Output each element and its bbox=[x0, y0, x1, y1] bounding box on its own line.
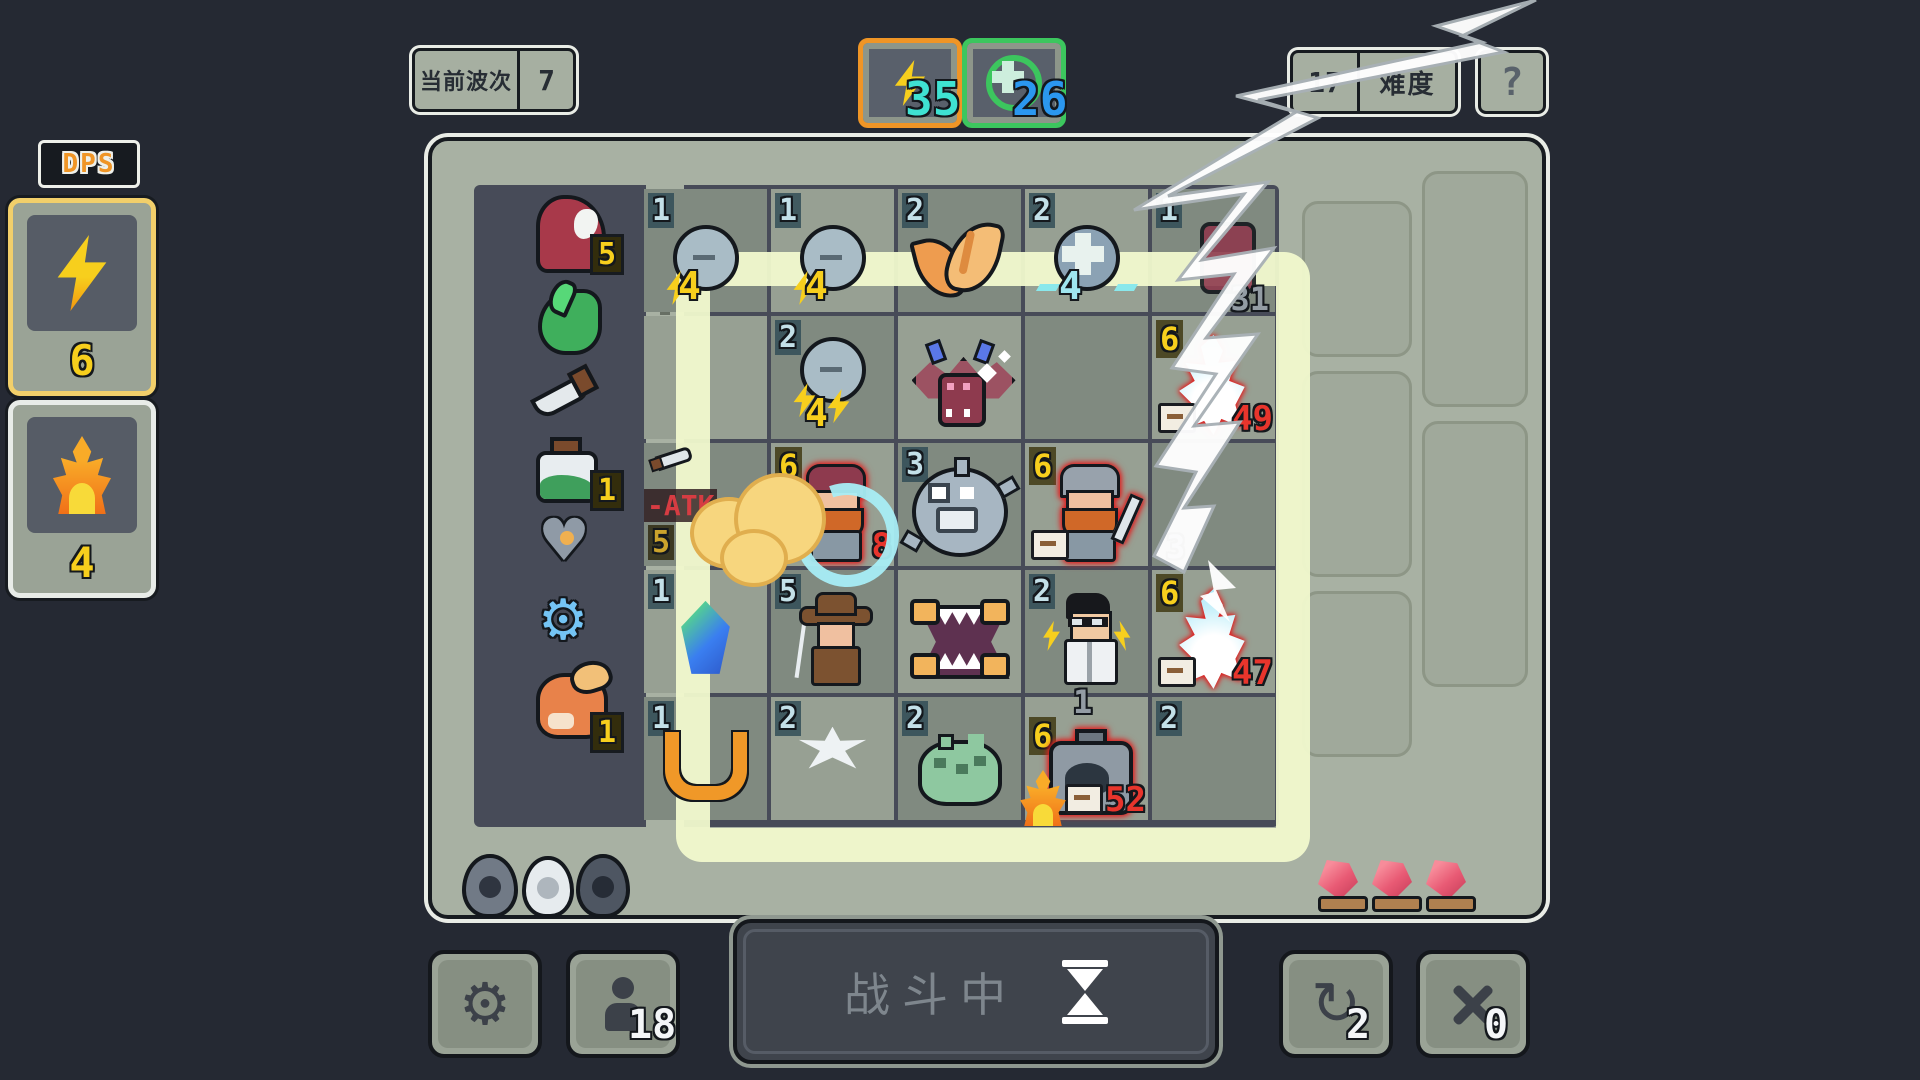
mimic bbox=[910, 599, 1010, 679]
refresh-button[interactable]: ↻ bbox=[1279, 950, 1393, 1058]
red-gem[interactable] bbox=[1426, 860, 1470, 912]
lightning-dps-count: 6 bbox=[13, 336, 151, 385]
refresh-count: 2 bbox=[1346, 1002, 1370, 1048]
pufferfish bbox=[912, 467, 1008, 557]
heal-value: 4 bbox=[1059, 264, 1082, 308]
block-value: 31 bbox=[1230, 280, 1269, 318]
wave-value: 7 bbox=[520, 51, 573, 109]
unit-count: 2 bbox=[1156, 701, 1182, 736]
swap-count: 0 bbox=[1484, 1002, 1508, 1048]
item-armored-heart[interactable]: ♥ bbox=[538, 513, 614, 589]
item-green-slime[interactable] bbox=[538, 289, 614, 365]
egg-charm-black[interactable] bbox=[576, 854, 630, 918]
settings-button[interactable]: ⚙ bbox=[428, 950, 542, 1058]
damage-value: 4 bbox=[678, 264, 701, 308]
item-dagger[interactable] bbox=[532, 363, 608, 439]
blue-gear-icon: ⚙ bbox=[538, 593, 614, 649]
wave-label: 当前波次 bbox=[415, 51, 517, 109]
bat-demon bbox=[912, 343, 1008, 427]
fire-icon bbox=[49, 436, 115, 514]
item-green-potion[interactable]: 1 bbox=[536, 437, 612, 513]
difficulty-value: 17 bbox=[1293, 53, 1357, 111]
game-screen: 当前波次 7 35 26 17 难度 ? DPS 6 4 bbox=[0, 0, 1920, 1080]
damage-number: 52 bbox=[1105, 780, 1146, 820]
hourglass-icon bbox=[1062, 960, 1108, 1024]
battle-grid: 1 4 1 4 2 2 4 1 31 bbox=[644, 189, 1275, 820]
item-count: 1 bbox=[590, 712, 624, 753]
minus-marker bbox=[1065, 784, 1103, 814]
item-count: 1 bbox=[590, 470, 624, 511]
armored-heart-icon: ♥ bbox=[538, 513, 614, 567]
dps-lightning-card[interactable]: 6 bbox=[8, 198, 156, 396]
explorer bbox=[791, 592, 875, 686]
scientist bbox=[1042, 593, 1132, 685]
wave-counter: 当前波次 7 bbox=[412, 48, 576, 112]
block-value: 3 bbox=[1166, 528, 1185, 566]
unit-count: 1 bbox=[648, 701, 674, 736]
unit-count: 2 bbox=[1029, 193, 1055, 228]
game-board: 5 1 ♥ ⚙ 1 bbox=[428, 137, 1546, 919]
help-button[interactable]: ? bbox=[1478, 50, 1546, 114]
red-gem[interactable] bbox=[1372, 860, 1416, 912]
dps-badge: DPS bbox=[38, 140, 140, 188]
heal-count: 26 bbox=[1012, 72, 1067, 126]
icon-well bbox=[27, 417, 137, 533]
item-fox-pet[interactable]: 1 bbox=[536, 673, 612, 749]
question-icon: ? bbox=[1501, 60, 1524, 104]
egg-charm-dark[interactable] bbox=[462, 854, 518, 918]
stone-tile bbox=[1302, 371, 1412, 577]
item-red-hood-minion[interactable]: 5 bbox=[536, 195, 612, 271]
stone-tile bbox=[1422, 171, 1528, 407]
fire-dps-count: 4 bbox=[13, 538, 151, 587]
red-gem[interactable] bbox=[1318, 860, 1362, 912]
fox-creature bbox=[914, 218, 1006, 298]
stone-tile bbox=[1422, 421, 1528, 687]
damage-value: 4 bbox=[805, 264, 828, 308]
damage-number: 47 bbox=[1232, 653, 1273, 693]
unit-count: 2 bbox=[775, 701, 801, 736]
stone-tile bbox=[1302, 591, 1412, 757]
unit-count: 3 bbox=[902, 447, 928, 482]
damage-value: 4 bbox=[805, 391, 828, 435]
item-blue-gear[interactable]: ⚙ bbox=[538, 593, 614, 669]
hero-count: 18 bbox=[628, 1002, 676, 1048]
egg-charm-white[interactable] bbox=[522, 856, 574, 918]
unit-count: 1 bbox=[775, 193, 801, 228]
item-count: 5 bbox=[590, 234, 624, 275]
minus-marker bbox=[1031, 530, 1069, 560]
potion-icon bbox=[536, 437, 596, 503]
gear-icon: ⚙ bbox=[459, 975, 511, 1033]
attack-smoke-cloud bbox=[690, 467, 830, 587]
dagger-icon bbox=[532, 363, 602, 423]
grid-cell-r0c2[interactable]: 2 bbox=[898, 189, 1021, 312]
damage-number: 49 bbox=[1232, 399, 1273, 439]
lightning-icon bbox=[53, 235, 111, 311]
battle-status-button[interactable]: 战斗中 bbox=[733, 919, 1219, 1064]
stone-tile bbox=[1302, 201, 1412, 357]
slime-icon bbox=[538, 289, 602, 355]
unit-count: 5 bbox=[648, 525, 674, 560]
battle-label: 战斗中 bbox=[844, 959, 1018, 1025]
dps-fire-card[interactable]: 4 bbox=[8, 400, 156, 598]
unit-count: 1 bbox=[648, 574, 674, 609]
horseshoe bbox=[665, 732, 747, 800]
minus-marker bbox=[1158, 657, 1196, 687]
icon-well bbox=[27, 215, 137, 331]
green-frog-creature bbox=[918, 740, 1002, 806]
unit-count: 2 bbox=[775, 320, 801, 355]
difficulty-label: 难度 bbox=[1360, 53, 1455, 111]
unit-count: 1 bbox=[648, 193, 674, 228]
unit-count: 1 bbox=[1156, 193, 1182, 228]
energy-count: 35 bbox=[905, 72, 960, 126]
difficulty-counter: 17 难度 bbox=[1290, 50, 1458, 114]
block-value: 1 bbox=[1073, 683, 1092, 721]
swap-button[interactable] bbox=[1416, 950, 1530, 1058]
unit-count: 2 bbox=[902, 701, 928, 736]
minus-marker bbox=[1158, 403, 1196, 433]
